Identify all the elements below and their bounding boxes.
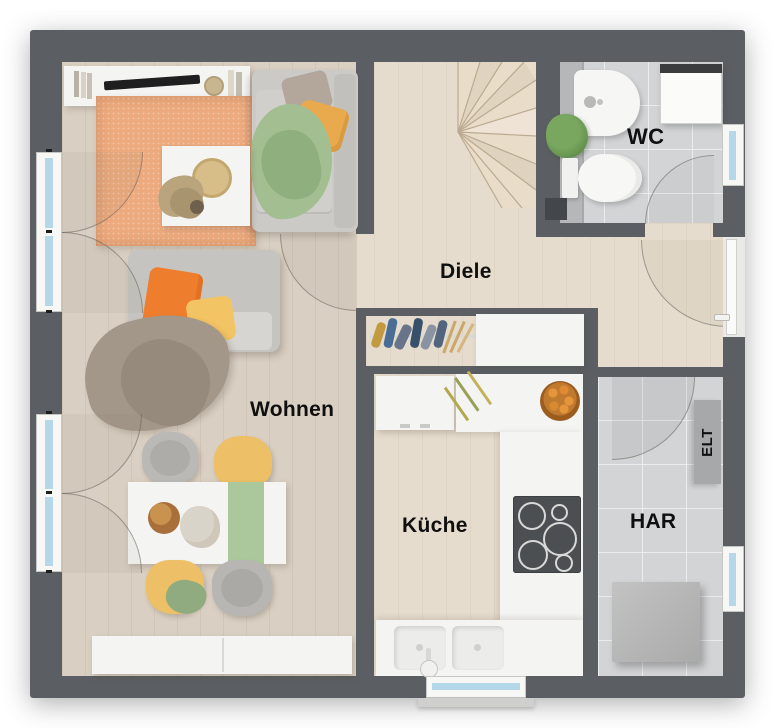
cooktop (513, 496, 581, 573)
burner-5 (555, 554, 573, 572)
floor-plan: ELT Wohnen Küche Diele WC HAR (0, 0, 775, 728)
fridge-handle-2 (420, 424, 430, 428)
utility-appliance (612, 582, 700, 662)
kitchen-label: Küche (402, 514, 468, 538)
window-tick (46, 310, 52, 313)
window-tick (46, 230, 52, 233)
electrical-label: ELT (699, 428, 716, 457)
living-room-label: Wohnen (250, 398, 334, 422)
fruit-bowl-counter (540, 381, 580, 421)
book-stack-right (228, 70, 234, 96)
window-tick (46, 491, 52, 494)
kitchen-window-glass (432, 683, 520, 690)
burner-1 (518, 502, 546, 530)
wardrobe-cabinet (476, 314, 584, 366)
wc-sink-faucet (584, 96, 596, 108)
window-tick (46, 570, 52, 573)
decor-dish (204, 76, 224, 96)
hall-label: Diele (440, 260, 492, 284)
burner-2 (551, 504, 568, 521)
dining-chair-gray-1-seat (150, 440, 190, 476)
plant-vase (190, 200, 204, 214)
living-sideboard-divider (222, 638, 224, 672)
book-stack-left (74, 71, 79, 97)
sofa-backrest (334, 74, 356, 228)
washing-machine-panel (660, 64, 722, 73)
utility-top-wall-left (598, 367, 612, 377)
dining-chair-yellow-1 (214, 436, 272, 488)
living-hall-doorway-floor (356, 234, 374, 310)
table-runner (228, 482, 264, 564)
burner-4 (518, 540, 548, 570)
dining-chair-gray-2-seat (221, 569, 263, 607)
sink-drain-right (474, 644, 481, 651)
wc-shaft (545, 198, 567, 220)
kitchen-left-wall (356, 374, 374, 676)
entrance-door-handle (714, 314, 730, 321)
utility-top-wall-right (688, 367, 723, 377)
table-flowers (180, 506, 220, 548)
elt-panel: ELT (694, 400, 721, 484)
wc-plant (546, 114, 588, 158)
fridge-handle-1 (400, 424, 410, 428)
utility-left-wall (583, 367, 598, 676)
wc-bottom-wall-right (713, 223, 723, 237)
toilet-tank (562, 158, 578, 198)
toilet-bowl (578, 154, 642, 202)
burner-3 (543, 522, 577, 556)
fruit-bowl-table (148, 502, 180, 534)
staircase (438, 62, 536, 208)
kitchen-window-sill (418, 698, 534, 707)
wc-label: WC (627, 124, 664, 150)
wc-window-glass (729, 131, 736, 180)
utility-window-glass (729, 553, 736, 606)
wc-bottom-wall-left (536, 223, 645, 237)
window-tick (46, 411, 52, 414)
washing-machine (660, 64, 722, 124)
sink-drain-left (416, 644, 423, 651)
utility-label: HAR (630, 510, 676, 534)
living-stair-wall (356, 62, 374, 234)
kitchen-fridge-cabinet (376, 376, 454, 430)
window-tick (46, 149, 52, 152)
